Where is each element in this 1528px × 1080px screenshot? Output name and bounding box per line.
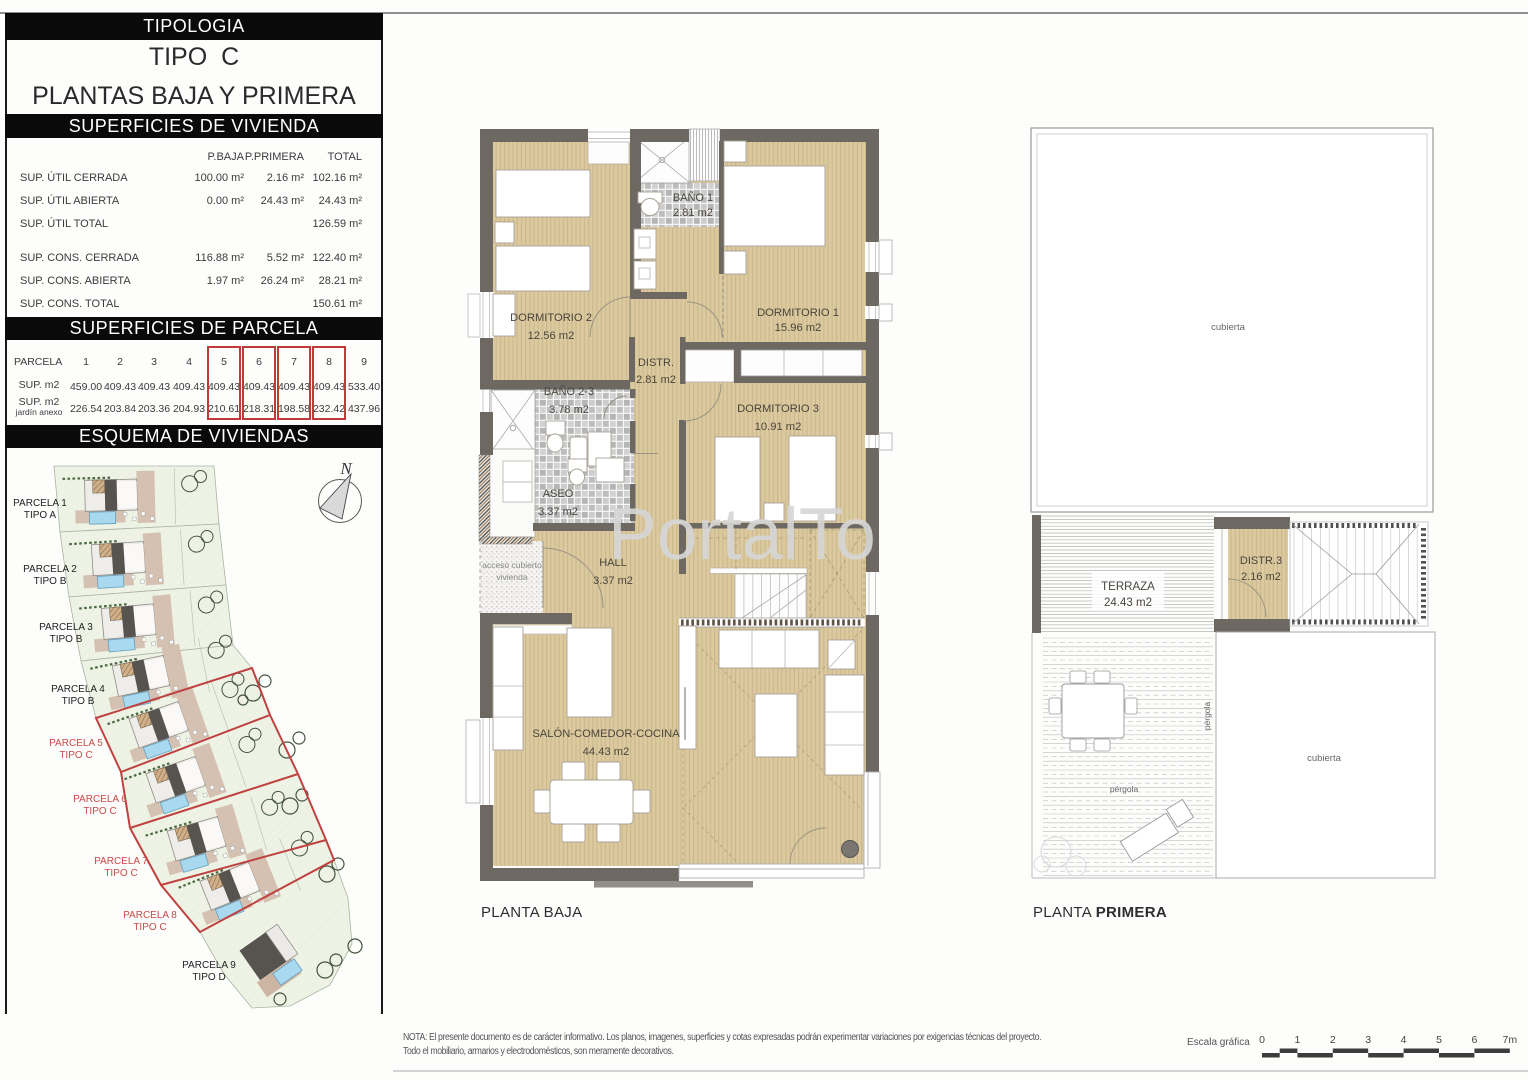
svg-text:PARCELA 6: PARCELA 6 bbox=[73, 794, 127, 805]
svg-text:12.56 m2: 12.56 m2 bbox=[528, 330, 575, 342]
svg-text:44.43 m2: 44.43 m2 bbox=[583, 746, 630, 758]
svg-text:TIPO C: TIPO C bbox=[59, 750, 92, 761]
svg-text:PARCELA 1: PARCELA 1 bbox=[13, 498, 67, 509]
svg-text:N: N bbox=[339, 459, 353, 478]
svg-text:cubierta: cubierta bbox=[1307, 753, 1342, 764]
svg-text:4: 4 bbox=[1401, 1034, 1407, 1046]
svg-text:3.37 m2: 3.37 m2 bbox=[538, 506, 578, 518]
svg-text:5: 5 bbox=[1436, 1034, 1442, 1046]
svg-text:2.16 m2: 2.16 m2 bbox=[1241, 571, 1281, 583]
svg-text:TIPO C: TIPO C bbox=[133, 922, 166, 933]
svg-text:vivienda: vivienda bbox=[496, 572, 527, 582]
svg-text:DORMITORIO 1: DORMITORIO 1 bbox=[757, 307, 839, 319]
svg-text:PARCELA 3: PARCELA 3 bbox=[39, 622, 93, 633]
svg-text:1: 1 bbox=[1294, 1034, 1300, 1046]
svg-text:2.81 m2: 2.81 m2 bbox=[636, 374, 676, 386]
svg-text:ASEO: ASEO bbox=[543, 488, 574, 500]
svg-text:TIPO C: TIPO C bbox=[83, 806, 116, 817]
svg-text:0: 0 bbox=[1259, 1034, 1265, 1046]
svg-text:24.43 m2: 24.43 m2 bbox=[1104, 597, 1152, 609]
svg-text:PARCELA 7: PARCELA 7 bbox=[94, 856, 148, 867]
svg-text:3: 3 bbox=[1365, 1034, 1371, 1046]
svg-text:PARCELA 5: PARCELA 5 bbox=[49, 738, 103, 749]
svg-text:pérgola: pérgola bbox=[1110, 784, 1139, 794]
svg-text:TIPO B: TIPO B bbox=[34, 576, 67, 587]
svg-text:PARCELA 4: PARCELA 4 bbox=[51, 684, 105, 695]
svg-text:10.91 m2: 10.91 m2 bbox=[755, 421, 802, 433]
svg-text:TIPO B: TIPO B bbox=[62, 696, 95, 707]
svg-text:3.78 m2: 3.78 m2 bbox=[549, 404, 589, 416]
svg-text:6: 6 bbox=[1471, 1034, 1477, 1046]
svg-text:PARCELA 9: PARCELA 9 bbox=[182, 960, 236, 971]
svg-text:TIPO B: TIPO B bbox=[50, 634, 83, 645]
svg-text:TIPO A: TIPO A bbox=[24, 510, 57, 521]
svg-text:2.81 m2: 2.81 m2 bbox=[673, 207, 713, 219]
svg-text:TIPO D: TIPO D bbox=[192, 972, 225, 983]
svg-text:DISTR.: DISTR. bbox=[638, 357, 674, 369]
svg-text:PARCELA 2: PARCELA 2 bbox=[23, 564, 77, 575]
svg-text:2: 2 bbox=[1330, 1034, 1336, 1046]
svg-text:15.96 m2: 15.96 m2 bbox=[775, 322, 822, 334]
svg-text:DISTR.3: DISTR.3 bbox=[1240, 555, 1282, 567]
svg-text:TIPO C: TIPO C bbox=[104, 868, 137, 879]
svg-text:PARCELA 8: PARCELA 8 bbox=[123, 910, 177, 921]
svg-text:7m: 7m bbox=[1503, 1034, 1518, 1046]
svg-text:BAÑO 1: BAÑO 1 bbox=[673, 191, 713, 204]
svg-text:DORMITORIO 2: DORMITORIO 2 bbox=[510, 312, 592, 324]
svg-text:TERRAZA: TERRAZA bbox=[1101, 581, 1155, 593]
svg-text:BAÑO 2-3: BAÑO 2-3 bbox=[544, 385, 594, 398]
svg-text:SALÓN-COMEDOR-COCINA: SALÓN-COMEDOR-COCINA bbox=[532, 727, 680, 740]
svg-text:pérgola: pérgola bbox=[1202, 702, 1212, 731]
svg-text:cubierta: cubierta bbox=[1211, 322, 1246, 333]
svg-text:DORMITORIO 3: DORMITORIO 3 bbox=[737, 403, 819, 415]
svg-text:3.37 m2: 3.37 m2 bbox=[593, 575, 633, 587]
svg-text:acceso cubierto: acceso cubierto bbox=[482, 560, 542, 570]
